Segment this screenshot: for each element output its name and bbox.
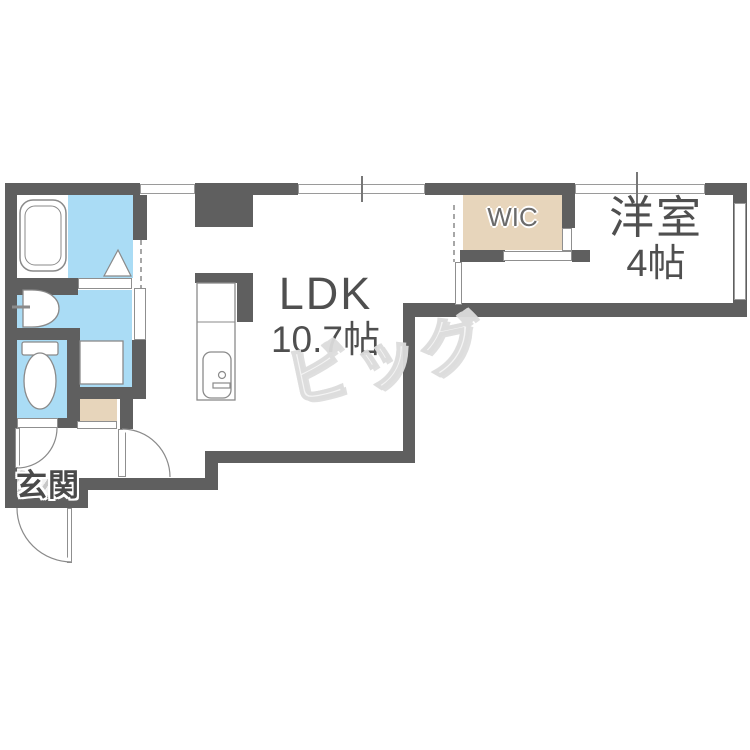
bath-fold-door-icon (104, 250, 131, 276)
washing-machine-pan (80, 341, 123, 384)
toilet-door-arc (17, 428, 57, 468)
wic-label: WIC (463, 204, 562, 231)
fixtures-layer (0, 0, 750, 750)
western-room-size: 4帖 (575, 245, 737, 285)
ldk-name: LDK (243, 270, 408, 317)
sink-drain (219, 372, 226, 379)
entrance-door-arc (17, 508, 72, 562)
western-room-label: 洋室 4帖 (575, 194, 737, 285)
entrance-label: 玄関 (16, 470, 80, 503)
hall-door-arc (122, 429, 170, 477)
toilet-bowl (24, 353, 56, 409)
ldk-label: LDK 10.7帖 (243, 270, 408, 360)
western-room-name: 洋室 (575, 194, 737, 241)
kitchen-sink (203, 352, 231, 398)
ldk-size: 10.7帖 (243, 321, 408, 360)
floor-plan: LDK 10.7帖 洋室 4帖 WIC 玄関 ビッグ (0, 0, 750, 750)
sink-faucet (213, 383, 230, 388)
